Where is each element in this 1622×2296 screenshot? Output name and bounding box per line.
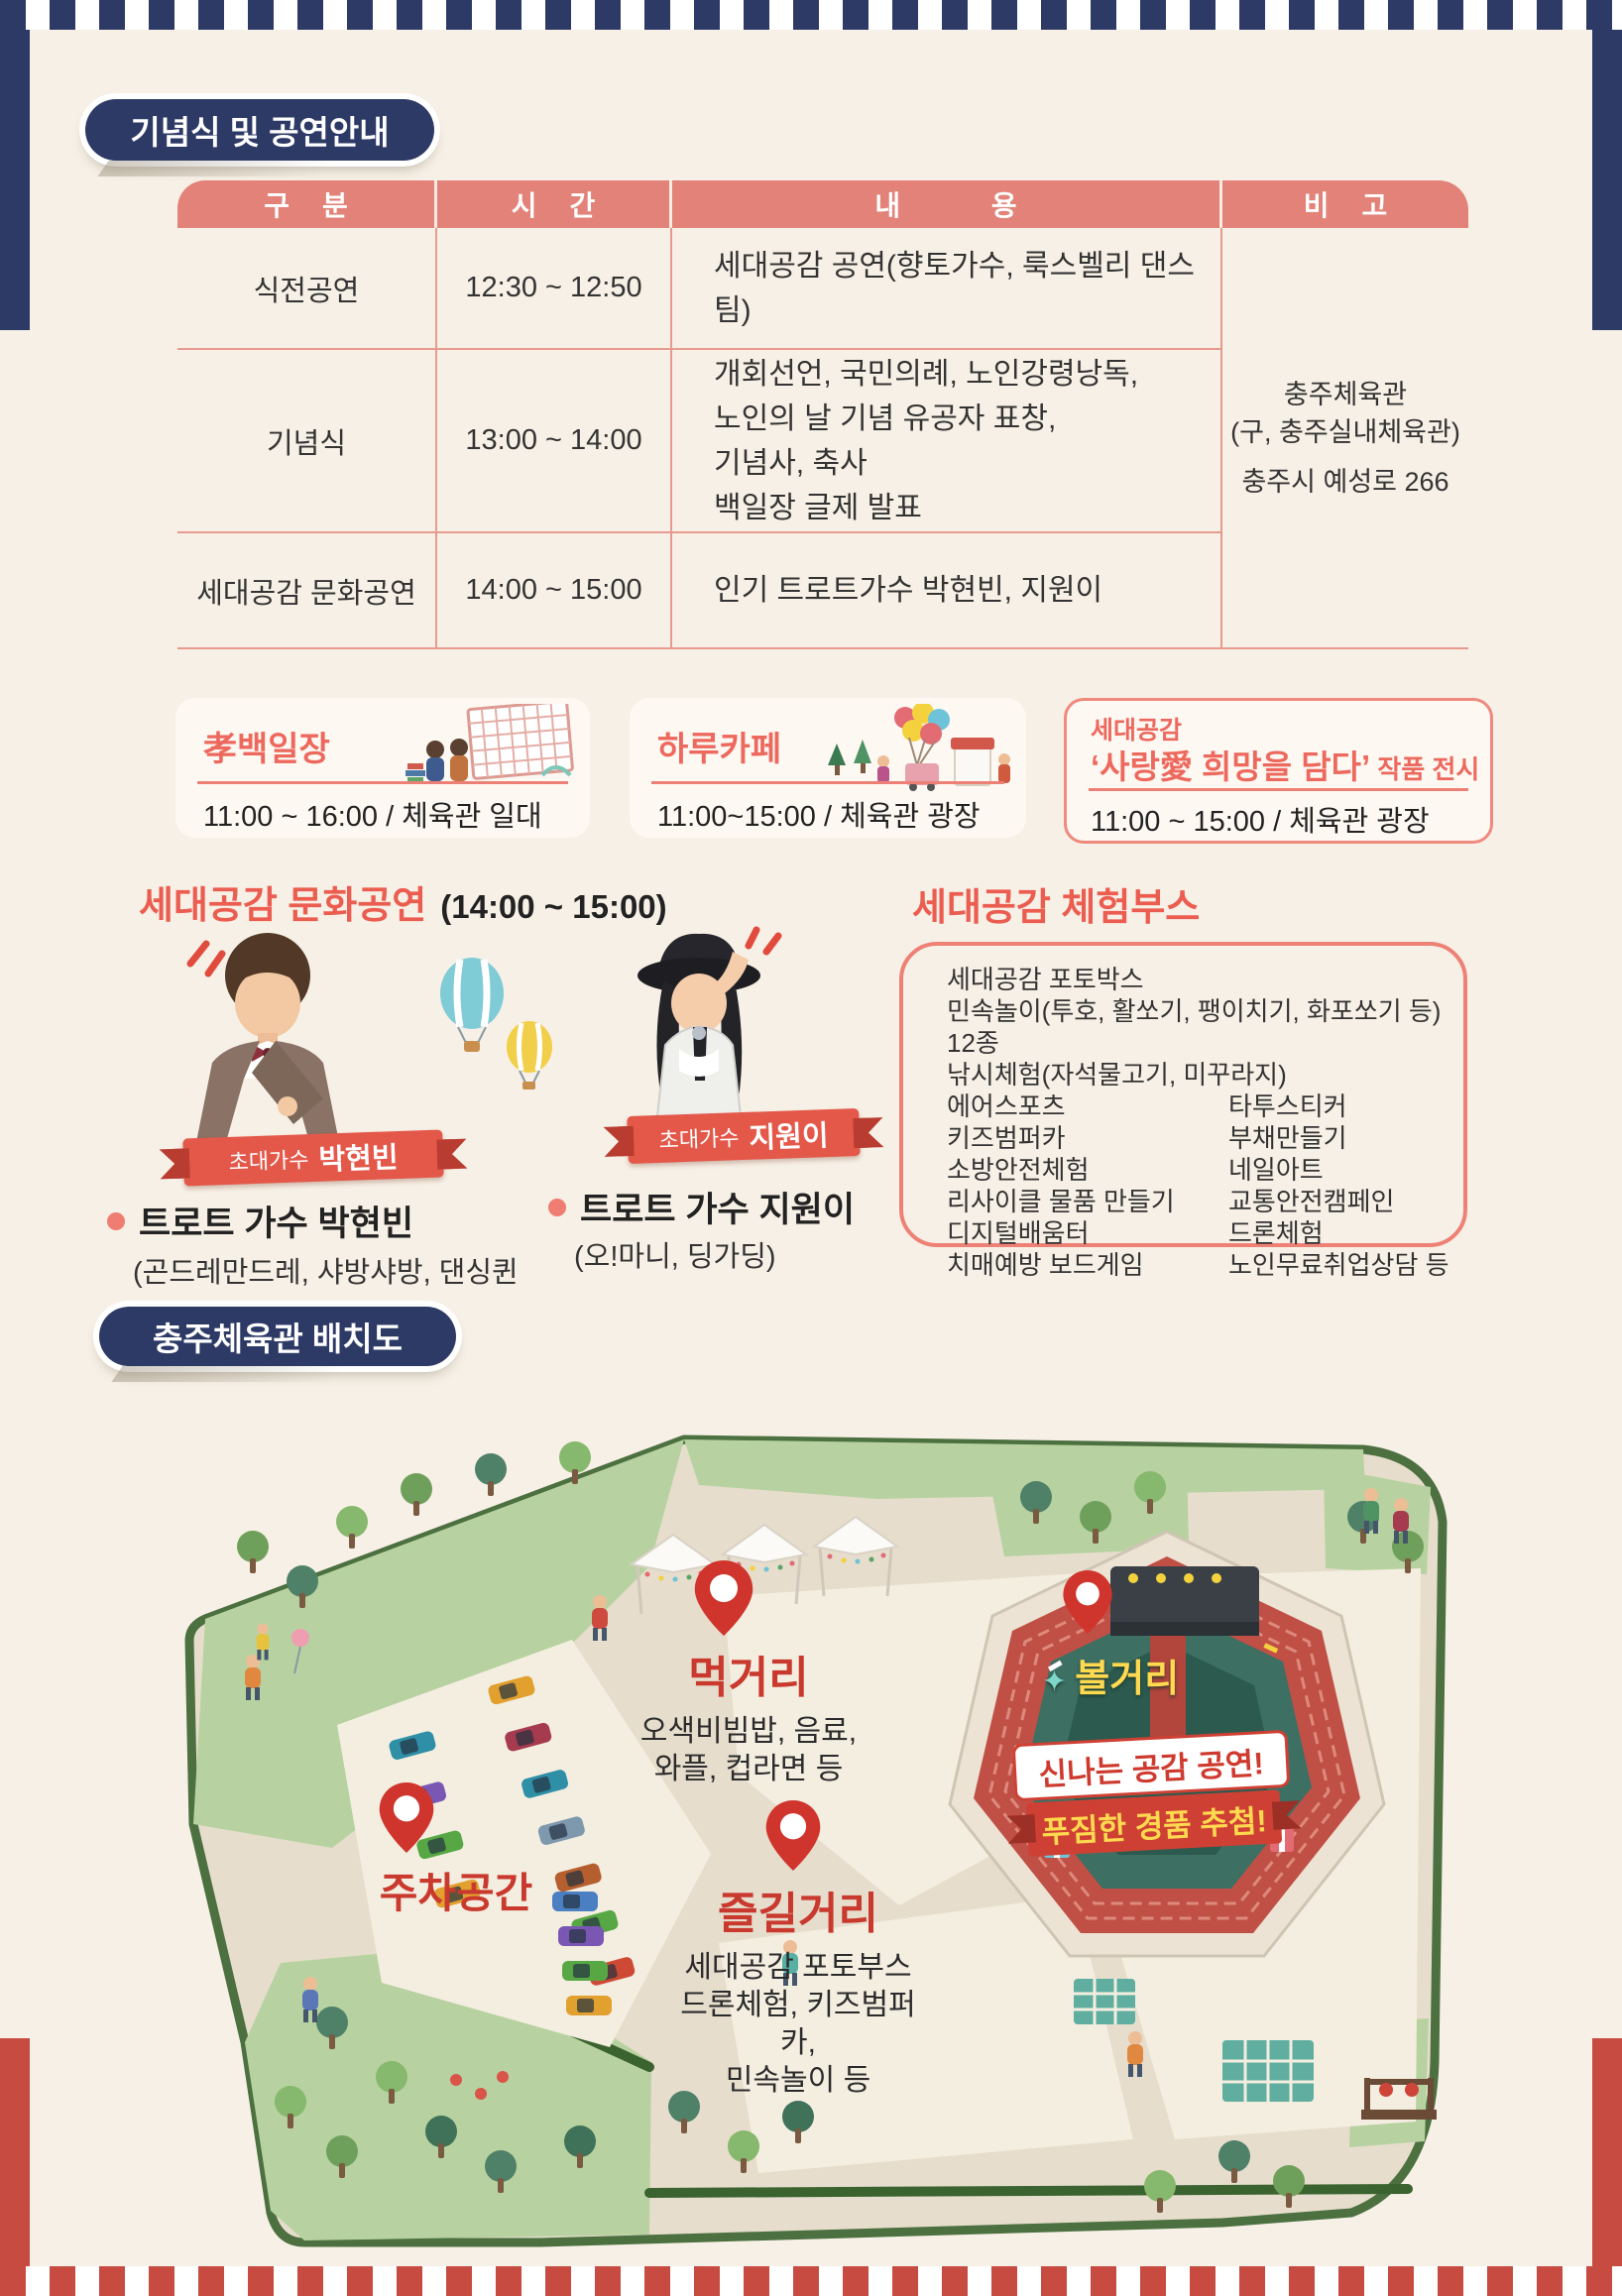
booth-item: 드론체험 [1228,1217,1449,1249]
singer-name-row: 트로트 가수 지원이 [548,1182,855,1232]
ribbon-prefix: 초대가수 [228,1142,309,1177]
map-pin-show-icon [1063,1570,1112,1634]
baekiljang-illustration-icon [394,704,582,789]
booth-item: 디지털배움터 [947,1217,1228,1249]
booth-column-left: 에어스포츠 키즈범퍼카 소방안전체험 리사이클 물품 만들기 디지털배움터 치매… [947,1091,1228,1281]
ribbon-prefix: 초대가수 [658,1120,740,1155]
booth-item: 노인무료취업상담 등 [1228,1249,1449,1281]
venue-name: 충주체육관 (구, 충주실내체육관) [1230,376,1460,451]
poster-page: 기념식 및 공연안내 구 분 시 간 내 용 비 고 식전공연 12:30 ~ … [0,0,1622,2296]
map-zone-desc: 세대공감 포토부스 드론체험, 키즈범퍼카, 민속놀이 등 [674,1949,922,2100]
table-row-category: 기념식 [177,350,437,533]
card-underline [1089,788,1468,791]
badge-ceremony-label: 기념식 및 공연안내 [130,106,389,154]
venue-map [183,1428,1472,2265]
card-underline [651,781,1004,784]
table-row-content: 개회선언, 국민의례, 노인강령낭독, 노인의 날 기념 유공자 표창, 기념사… [672,350,1222,533]
card-title-suffix: 작품 전시 [1370,754,1479,784]
event-card-harucafe: 하루카페 11:00~15:00 / 체육관 광장 [630,698,1026,838]
card-time: 11:00 ~ 15:00 / 체육관 광장 [1091,798,1430,840]
map-label-parking: 주차공간 [347,1860,565,1920]
performance-heading: 세대공감 문화공연 (14:00 ~ 15:00) [139,874,667,929]
venue-map-illustration [183,1428,1472,2265]
left-navy-bar [0,30,30,330]
badge-map-label: 충주체육관 배치도 [153,1313,403,1360]
singer-photo-parkhyunbin [169,922,367,1142]
singer-name: 트로트 가수 박현빈 [139,1196,413,1246]
map-pin-parking-icon [379,1782,434,1853]
section-badge-ceremony: 기념식 및 공연안내 [85,99,434,161]
map-label-food: 먹거리 오색비빔밥, 음료, 와플, 컵라면 등 [625,1642,872,1788]
map-zone-title: 볼거리 [1001,1648,1219,1702]
map-pin-food-icon [694,1560,753,1636]
booth-item: 키즈범퍼카 [947,1122,1228,1154]
event-card-baekiljang: 孝백일장 11:00 ~ 16:00 / 체육관 일대 [175,698,590,838]
booth-item: 소방안전체험 [947,1154,1228,1186]
table-row-category: 식전공연 [177,228,437,350]
booth-title: 세대공감 체험부스 [912,876,1200,931]
booth-item: 민속놀이(투호, 활쏘기, 팽이치기, 화포쏘기 등) 12종 [947,995,1463,1059]
singer-name-row: 트로트 가수 박현빈 [107,1196,413,1246]
card-underline [197,781,568,784]
bullet-icon [548,1199,566,1216]
table-row-time: 12:30 ~ 12:50 [437,228,672,350]
venue-address: 충주시 예성로 266 [1241,463,1448,501]
bullet-icon [107,1212,125,1230]
schedule-table: 구 분 시 간 내 용 비 고 식전공연 12:30 ~ 12:50 세대공감 … [177,180,1468,649]
booth-list-box: 세대공감 포토박스 민속놀이(투호, 활쏘기, 팽이치기, 화포쏘기 등) 12… [899,942,1467,1247]
performance-title: 세대공감 문화공연 [139,874,426,929]
booth-item: 타투스티커 [1228,1091,1449,1122]
card-title-main: ‘사랑愛 희망을 담다’ [1091,748,1370,785]
event-card-artshow: 세대공감 ‘사랑愛 희망을 담다’ 작품 전시 11:00 ~ 15:00 / … [1064,698,1493,844]
booth-columns: 에어스포츠 키즈범퍼카 소방안전체험 리사이클 물품 만들기 디지털배움터 치매… [947,1091,1463,1281]
singer-name: 트로트 가수 지원이 [580,1182,855,1232]
singer-photo-jiwoni [600,922,798,1116]
map-label-show: 볼거리 [1001,1648,1219,1702]
card-title: 孝백일장 [203,722,330,770]
card-time: 11:00 ~ 16:00 / 체육관 일대 [203,793,542,835]
left-red-bar [0,2038,30,2266]
card-title: ‘사랑愛 희망을 담다’ 작품 전시 [1091,741,1479,788]
map-zone-title: 즐길거리 [674,1878,922,1941]
singer-ribbon: 초대가수 지원이 [627,1108,861,1164]
map-zone-desc: 오색비빔밥, 음료, 와플, 컵라면 등 [625,1713,872,1788]
booth-item: 에어스포츠 [947,1091,1228,1122]
booth-item: 리사이클 물품 만들기 [947,1186,1228,1217]
booth-item: 부채만들기 [1228,1122,1449,1154]
col-header-note: 비 고 [1222,180,1468,228]
card-title: 하루카페 [657,722,781,770]
banner-text: 신나는 공감 공연! [1037,1738,1264,1794]
ribbon-name: 지원이 [749,1112,829,1157]
singer-ribbon: 초대가수 박현빈 [182,1129,444,1186]
top-stripe-border [0,0,1622,30]
hot-air-balloon-icon [436,958,508,1053]
booth-heading: 세대공감 체험부스 [912,876,1200,931]
harucafe-illustration-icon [810,704,1018,791]
table-row-category: 세대공감 문화공연 [177,533,437,649]
map-zone-title: 먹거리 [625,1642,872,1705]
map-zone-title: 주차공간 [347,1860,565,1920]
right-navy-bar [1592,30,1622,330]
booth-item: 세대공감 포토박스 [947,964,1463,995]
booth-item: 치매예방 보드게임 [947,1249,1228,1281]
col-header-time: 시 간 [437,180,672,228]
right-red-bar [1592,2038,1622,2266]
bottom-stripe-border [0,2266,1622,2296]
booth-item: 낚시체험(자석물고기, 미꾸라지) [947,1059,1463,1091]
booth-column-right: 타투스티커 부채만들기 네일아트 교통안전캠페인 드론체험 노인무료취업상담 등 [1228,1091,1449,1281]
booth-item: 네일아트 [1228,1154,1449,1186]
map-label-fun: 즐길거리 세대공감 포토부스 드론체험, 키즈범퍼카, 민속놀이 등 [674,1878,922,2100]
table-note-cell: 충주체육관 (구, 충주실내체육관) 충주시 예성로 266 [1222,228,1468,649]
section-badge-map: 충주체육관 배치도 [99,1307,456,1366]
table-row-time: 13:00 ~ 14:00 [437,350,672,533]
table-row-time: 14:00 ~ 15:00 [437,533,672,649]
col-header-category: 구 분 [177,180,437,228]
booth-item: 교통안전캠페인 [1228,1186,1449,1217]
table-row-content: 세대공감 공연(향토가수, 룩스벨리 댄스팀) [672,228,1222,350]
col-header-content: 내 용 [672,180,1222,228]
map-pin-fun-icon [765,1800,821,1871]
banner-text: 푸짐한 경품 추첨! [1040,1795,1267,1852]
performance-time: (14:00 ~ 15:00) [440,888,666,926]
singer-songs: (오!마니, 딩가딩) [574,1233,776,1275]
card-time: 11:00~15:00 / 체육관 광장 [657,793,981,835]
table-row-content: 인기 트로트가수 박현빈, 지원이 [672,533,1222,649]
ribbon-name: 박현빈 [318,1134,399,1179]
